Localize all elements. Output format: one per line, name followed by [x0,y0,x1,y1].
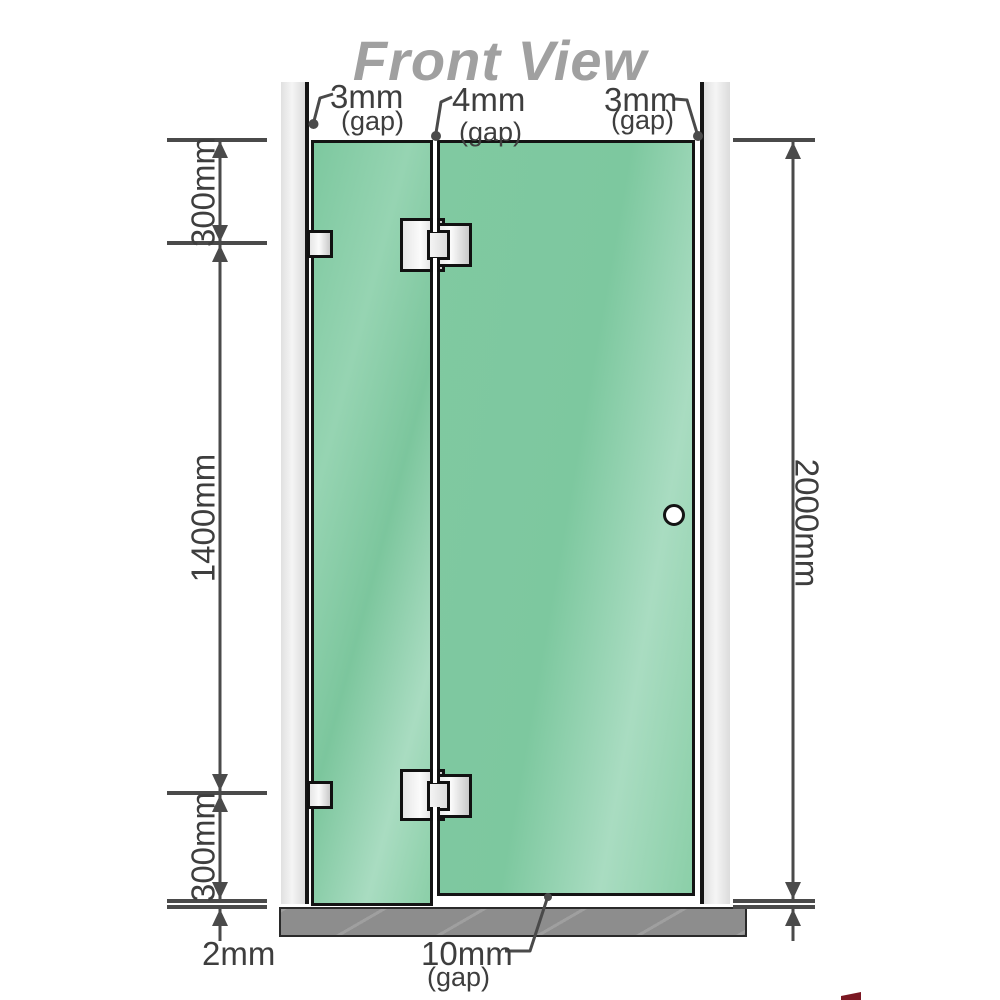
hinge-tongue [427,230,450,260]
logo-mark [841,992,861,1000]
gap-label-middle: 4mm [452,83,525,116]
door-knob [663,504,685,526]
glass-gap-channel [430,258,440,272]
gap-note-left: (gap) [341,108,404,135]
glass-gap-channel [430,769,440,783]
dim-label-300mm-top: 300mm [187,137,220,247]
front-view-diagram: Front View [0,0,1000,1000]
door-glass-panel [437,140,695,896]
glass-gap-channel [430,218,440,232]
arrowhead-up [212,245,228,262]
left-wall [281,82,309,904]
gap-note-bottom: (gap) [427,964,490,991]
wall-bracket-top [307,230,333,258]
arrowhead-up [785,909,801,926]
gap-note-right: (gap) [611,107,674,134]
dim-label-2mm: 2mm [202,937,275,970]
right-wall [700,82,730,904]
leader-dot [309,119,319,129]
arrowhead-up [785,142,801,159]
hinge-bottom [400,769,472,829]
glass-gap-channel [430,807,440,821]
arrowhead-down [785,882,801,899]
floor [279,907,747,937]
arrowhead-down [212,774,228,791]
gap-note-middle: (gap) [459,119,522,146]
hinge-top [400,218,472,278]
dim-label-300mm-bottom: 300mm [187,792,220,902]
dim-label-1400mm: 1400mm [187,454,220,582]
arrowhead-up [212,909,228,926]
dim-label-2000mm: 2000mm [791,459,824,587]
wall-bracket-bottom [307,781,333,809]
